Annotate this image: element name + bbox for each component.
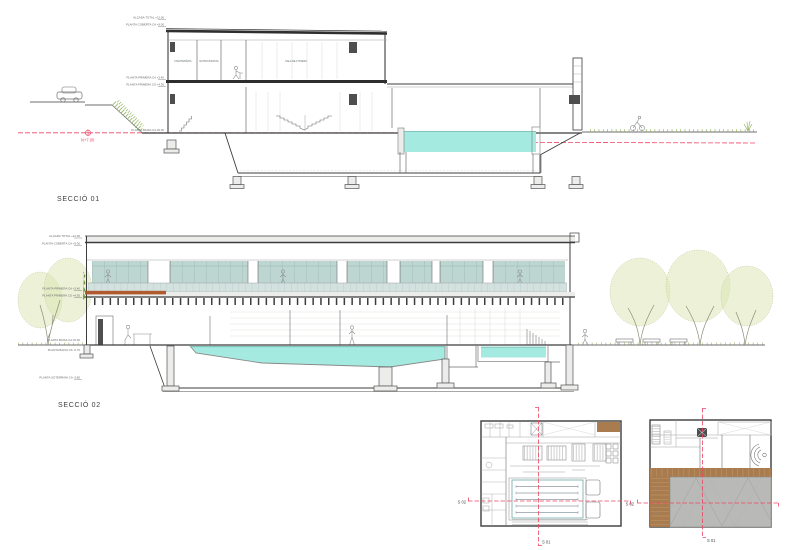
car-icon — [57, 87, 82, 102]
section-01-drawing: N+7.00 — [18, 16, 757, 204]
section-01-building — [142, 29, 583, 189]
level-label: PLANTA SOTERRANI CA -3.80 — [39, 376, 80, 380]
level-label: ALÇADA TOTAL +12.00 — [49, 234, 80, 238]
left-trees — [18, 258, 92, 345]
level-label: PLANTA PRIMERA CS +4.30 — [126, 83, 164, 87]
section-marker-label: S 02 — [458, 500, 467, 505]
section-marker-label: S 02 — [626, 502, 635, 507]
section-01-room-labels: FISIOTERÀPIA NUTRICIONISTA SALA DE FITNE… — [174, 60, 307, 63]
section-01-level-labels: ALÇADA TOTAL +12.00 PLANTA COBERTA CA +9… — [126, 16, 166, 133]
datum-symbol-icon — [85, 129, 92, 136]
right-trees — [610, 250, 773, 345]
section-02-building — [80, 233, 579, 392]
room-label: NUTRICIONISTA — [199, 60, 219, 63]
pool-section-01 — [398, 127, 540, 154]
ground-floor-interior — [96, 308, 560, 345]
person-at-desk-icon — [233, 66, 243, 79]
section-01-right-ground — [582, 116, 757, 132]
level-label: PLANTA PRIMERA CA +3.40 — [127, 76, 165, 80]
plan-first-floor: S 02 S 01 — [626, 408, 779, 543]
receptionist-icon — [125, 325, 152, 345]
learner-pool-section-02 — [478, 346, 548, 362]
shaft — [569, 58, 582, 130]
sections-and-plans-drawing: N+7.00 — [0, 0, 800, 550]
drawing-sheet: N+7.00 — [0, 0, 800, 550]
section-marker-label: S 01 — [707, 538, 716, 543]
cyclist-icon — [630, 116, 644, 130]
datum-label: N+7.00 — [81, 138, 95, 143]
section-02-right-ground — [572, 250, 773, 345]
plan-b-terrace — [650, 468, 771, 527]
level-label: PLANTA BAIXA CA ±0.00 — [47, 338, 80, 342]
standing-person-icon — [349, 326, 355, 345]
roof-over-pool — [670, 477, 771, 527]
level-label: ALÇADA TOTAL +12.00 — [133, 16, 164, 20]
upper-glazing — [87, 260, 568, 285]
level-label: PLANTA PRIMERA CS +4.30 — [42, 294, 80, 298]
road-and-car — [30, 87, 143, 133]
plan-ground-floor: S 02 S 01 — [458, 407, 631, 546]
section-marker-label: S 01 — [542, 540, 551, 545]
level-label: PLANTA BAIXA CA ±0.00 — [131, 128, 164, 132]
bench-icon — [616, 339, 687, 345]
room-label: FISIOTERÀPIA — [174, 60, 192, 63]
section-02-drawing: ALÇADA TOTAL +12.00 PLANTA COBERTA CA +9… — [18, 233, 773, 409]
level-label: PLANTA COBERTA CA +9.00 — [126, 23, 164, 27]
section-02-title: SECCIÓ 02 — [58, 400, 101, 409]
section-01-title: SECCIÓ 01 — [57, 194, 100, 203]
room-label: SALA DE FITNESS — [285, 60, 307, 63]
level-label: PLANTA COBERTA CA +9.00 — [42, 242, 80, 246]
plan-deck-patch — [597, 422, 620, 432]
level-label: PLANTA PRIMERA CA +3.40 — [43, 287, 81, 291]
main-pool-section-02 — [190, 346, 445, 367]
level-label: PLANTA BAIXA CS -0.70 — [48, 348, 81, 352]
